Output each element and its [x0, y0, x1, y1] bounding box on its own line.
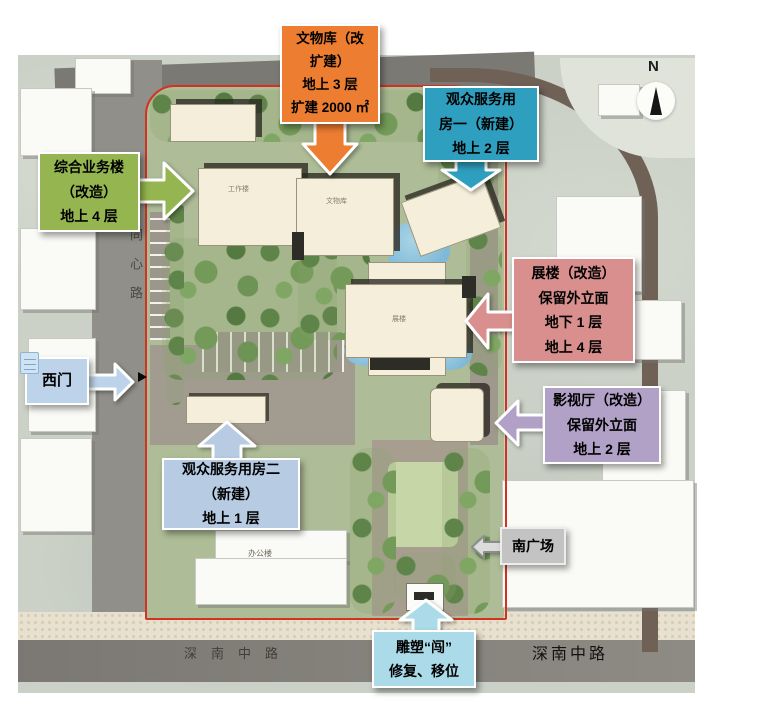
- callout-guanzhong-fuwu-2[interactable]: 观众服务用房二 （新建） 地上 1 层: [162, 458, 300, 530]
- north-arrow-icon: [637, 82, 675, 120]
- offsite-building-west-2: [20, 228, 96, 310]
- callout-line: 地上 2 层: [452, 136, 510, 161]
- callout-line: 雕塑“闯”: [396, 635, 452, 660]
- callout-arrow-left-nanguangchang: [470, 534, 504, 560]
- callout-line: 观众服务用房二: [182, 457, 280, 482]
- callout-line: （改造）: [61, 180, 117, 205]
- site-plan-page: 工作楼 文物库 展楼 办公楼 同心路 深南中路 深南中路 N 文物库（改 扩建: [0, 0, 765, 721]
- callout-zhanlou[interactable]: 展楼（改造） 保留外立面 地下 1 层 地上 4 层: [512, 257, 635, 363]
- callout-line: （新建）: [203, 482, 259, 507]
- callout-line: 影视厅（改造）: [553, 388, 651, 413]
- callout-arrow-right-ximen: [87, 363, 135, 401]
- road-label-shennan-right: 深南中路: [532, 640, 608, 664]
- callout-line: 展楼（改造）: [532, 261, 616, 286]
- callout-line: 房一（新建）: [439, 112, 523, 137]
- callout-arrow-down-guanzhong1: [440, 158, 502, 192]
- callout-line: 观众服务用: [446, 87, 516, 112]
- callout-nanguangchang[interactable]: 南广场: [500, 527, 566, 565]
- paste-options-icon[interactable]: [20, 352, 39, 374]
- north-label: N: [648, 58, 659, 75]
- north-needle: [650, 87, 662, 115]
- callout-arrow-up-diaosu: [398, 598, 454, 634]
- callout-line: 保留外立面: [539, 286, 609, 311]
- callout-line: 地下 1 层: [545, 310, 603, 335]
- building-gongzuolou: [198, 168, 302, 246]
- callout-line: 文物库（改: [296, 28, 364, 51]
- callout-line: 修复、移位: [389, 659, 459, 684]
- callout-yingshiting[interactable]: 影视厅（改造） 保留外立面 地上 2 层: [543, 386, 661, 464]
- callout-line: 扩建）: [310, 51, 351, 74]
- building-label: 文物库: [326, 196, 347, 206]
- callout-arrow-left-zhanlou: [464, 290, 516, 352]
- building-shadow-band: [370, 358, 430, 370]
- callout-guanzhong-fuwu-1[interactable]: 观众服务用 房一（新建） 地上 2 层: [423, 86, 539, 162]
- building-yingshiting: [430, 388, 484, 442]
- trees-south-west: [350, 448, 396, 614]
- callout-diaosu[interactable]: 雕塑“闯” 修复、移位: [372, 630, 476, 688]
- callout-line: 扩建 2000 ㎡: [291, 97, 369, 120]
- callout-line: 地上 2 层: [573, 437, 631, 462]
- building-label: 工作楼: [228, 184, 249, 194]
- trees-road-line: [166, 200, 184, 405]
- building-north-annex: [170, 104, 256, 142]
- callout-arrow-down-wenwuku: [302, 122, 358, 176]
- callout-line: 地上 3 层: [302, 74, 358, 97]
- building-core: [292, 232, 304, 260]
- callout-line: 保留外立面: [567, 413, 637, 438]
- west-gate-marker: [138, 372, 147, 382]
- callout-line: 地上 1 层: [202, 506, 260, 531]
- building-label-bangonglou: 办公楼: [248, 548, 272, 559]
- callout-arrow-up-guanzhong2: [196, 420, 258, 462]
- callout-line: 综合业务楼: [54, 155, 124, 180]
- offsite-building-west-1: [20, 88, 92, 156]
- callout-zonghe-yewulou[interactable]: 综合业务楼 （改造） 地上 4 层: [38, 152, 140, 232]
- callout-line: 地上 4 层: [60, 204, 118, 229]
- callout-arrow-left-yingshiting: [494, 398, 546, 448]
- road-label-shennan-left: 深南中路: [184, 643, 292, 662]
- callout-arrow-right-zonghe: [138, 158, 196, 226]
- callout-line: 西门: [42, 368, 72, 394]
- offsite-building-northeast: [598, 84, 640, 116]
- road-label-tongxin: 同心路: [126, 228, 145, 315]
- callout-line: 地上 4 层: [545, 335, 603, 360]
- building-wenwuku: [296, 178, 394, 256]
- callout-line: 南广场: [512, 534, 554, 559]
- building-label: 展楼: [392, 314, 406, 324]
- building-zhanlou: [345, 284, 467, 358]
- offsite-building-west-4: [20, 438, 92, 532]
- callout-wenwuku[interactable]: 文物库（改 扩建） 地上 3 层 扩建 2000 ㎡: [280, 24, 380, 124]
- building-bangonglou: [195, 558, 347, 605]
